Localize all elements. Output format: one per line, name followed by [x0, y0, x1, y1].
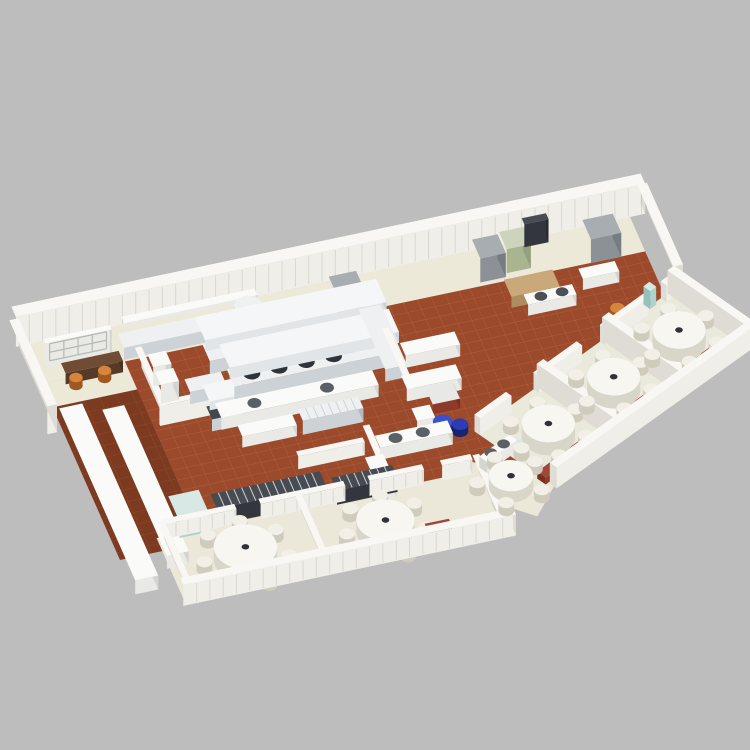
teal-glass-door [644, 282, 657, 309]
back-doorway [522, 213, 549, 247]
render-viewport [0, 0, 750, 750]
kitchen-floorplan-rendering [0, 0, 750, 750]
